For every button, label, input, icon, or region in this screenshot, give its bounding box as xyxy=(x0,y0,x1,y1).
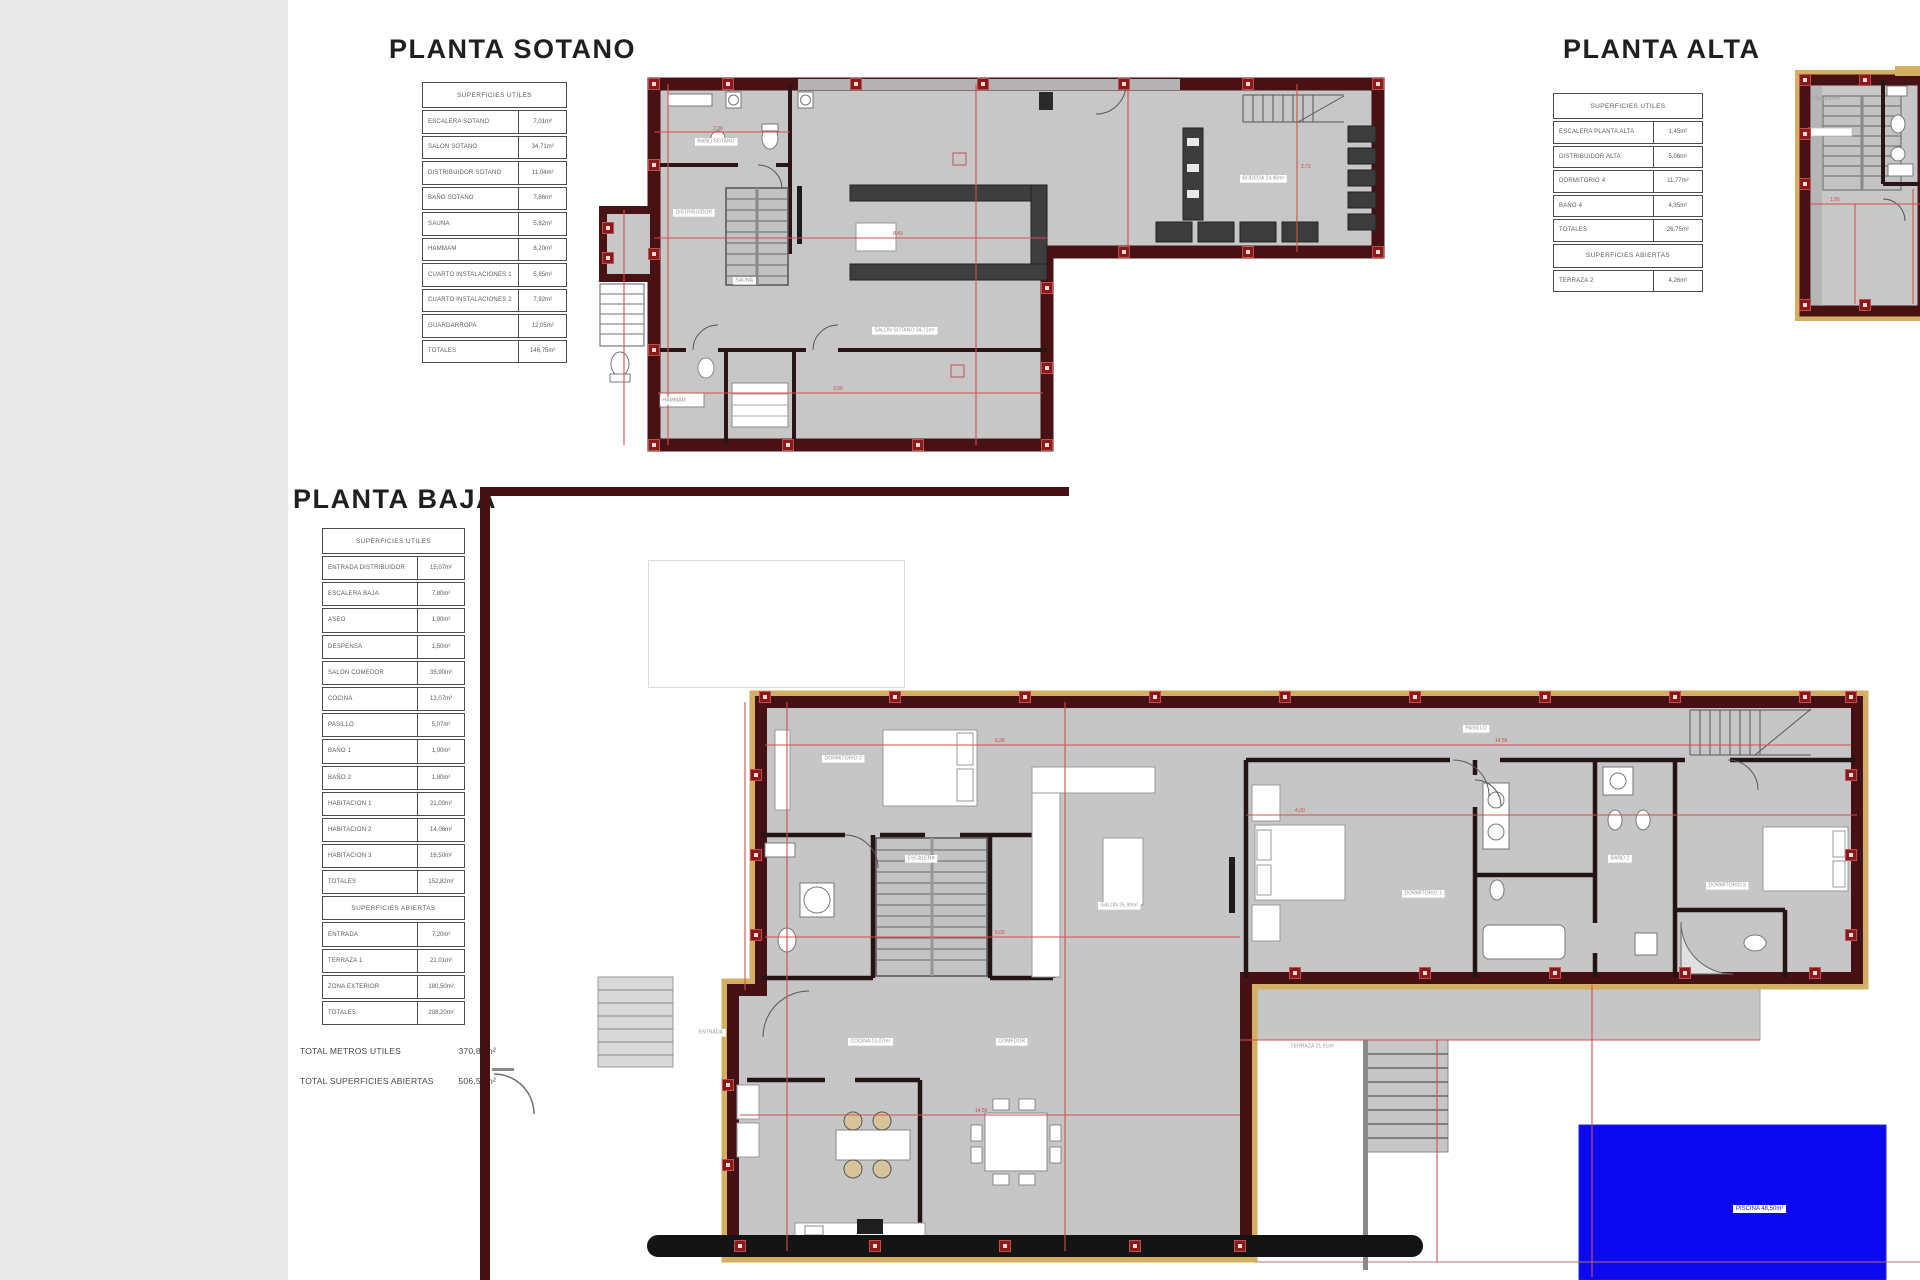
table-row: GUARDARROPA12,05m² xyxy=(422,314,567,338)
table-row: HABITACION 121,00m² xyxy=(322,792,465,816)
table-row: TOTALES26,75m² xyxy=(1553,219,1703,242)
total-metros-utiles: TOTAL METROS UTILES 370,87m² xyxy=(300,1046,496,1056)
table-row: DISTRIBUIDOR ALTA5,06m² xyxy=(1553,146,1703,169)
baja-terrace xyxy=(1240,985,1760,1040)
table-row: BAÑO 21,80m² xyxy=(322,766,465,790)
total-value: 370,87m² xyxy=(458,1046,496,1056)
table-superficies-alta: SUPERFICIES UTILES ESCALERA PLANTA ALTA1… xyxy=(1553,93,1703,292)
total-label: TOTAL SUPERFICIES ABIERTAS xyxy=(300,1076,434,1086)
baja-porch-stairs xyxy=(598,977,673,1067)
sotano-stairs xyxy=(726,188,788,285)
table-header-baja: SUPERFICIES UTILES xyxy=(322,528,465,554)
room-label: BAÑO 2 xyxy=(1608,855,1632,863)
sotano-tv xyxy=(797,186,802,244)
table-row: HABITACION 214,06m² xyxy=(322,818,465,842)
alta-tan-block xyxy=(1895,66,1920,76)
table-row: ESCALERA SOTANO7,01m² xyxy=(422,110,567,134)
room-label: BODEGA 24,90m² xyxy=(1240,175,1287,183)
table-header-sotano: SUPERFICIES UTILES xyxy=(422,82,567,108)
room-label: SALON 35,90m² xyxy=(1098,902,1141,910)
table-row: PASILLO5,07m² xyxy=(322,713,465,737)
svg-text:3,95: 3,95 xyxy=(833,386,843,392)
table-row: DORMITORIO 411,77m² xyxy=(1553,170,1703,193)
table-row: SALON SOTANO34,71m² xyxy=(422,136,567,160)
table-row: CUARTO INSTALACIONES 15,85m² xyxy=(422,263,567,287)
table-row: BAÑO 11,90m² xyxy=(322,739,465,763)
table-superficies-baja: SUPERFICIES UTILES ENTRADA DISTRIBUIDOR1… xyxy=(322,528,465,1025)
table-row: DESPENSA1,50m² xyxy=(322,635,465,659)
table-row: DISTRIBUIDOR SOTANO11,04m² xyxy=(422,161,567,185)
room-label: SALON SOTANO 34,71m² xyxy=(872,327,937,335)
svg-text:2,30: 2,30 xyxy=(713,126,723,132)
floor-plan-sotano: 2,30 8,43 3,95 2,72 xyxy=(598,68,1390,460)
table-rows-alta: ESCALERA PLANTA ALTA1,45m²DISTRIBUIDOR A… xyxy=(1553,121,1703,242)
table-row: BAÑO SOTANO7,86m² xyxy=(422,187,567,211)
table-row: TOTALES208,20m² xyxy=(322,1001,465,1025)
table-row: HAMMAM8,20m² xyxy=(422,238,567,262)
room-label: DORMITORIO 1 xyxy=(1402,890,1444,898)
room-label: ENTRADA xyxy=(696,1029,725,1037)
svg-text:4,00: 4,00 xyxy=(1295,808,1305,814)
svg-text:8,43: 8,43 xyxy=(893,231,903,237)
table-row: TERRAZA 121,01m² xyxy=(322,949,465,973)
table-row: TERRAZA 24,26m² xyxy=(1553,270,1703,293)
table-row: ASEO1,90m² xyxy=(322,608,465,632)
alta-terrace-strip xyxy=(1811,86,1822,305)
table-row: ENTRADA DISTRIBUIDOR15,07m² xyxy=(322,556,465,580)
alta-dimension-text: 1,95 xyxy=(1830,197,1840,203)
floor-plan-baja: 6,26 14,56 5,00 4,00 14,56 xyxy=(595,685,1920,1280)
total-superficies-abiertas: TOTAL SUPERFICIES ABIERTAS 506,56m² xyxy=(300,1076,496,1086)
table-row: ESCALERA BAJA7,80m² xyxy=(322,582,465,606)
room-label: ESCALERA xyxy=(905,855,937,863)
sotano-exterior-stairs xyxy=(600,284,644,346)
title-planta-baja: PLANTA BAJA xyxy=(293,484,497,515)
room-label: ESCALERA xyxy=(1812,96,1839,102)
table-rows-baja: ENTRADA DISTRIBUIDOR15,07m²ESCALERA BAJA… xyxy=(322,556,465,894)
table-row: COCINA13,07m² xyxy=(322,687,465,711)
title-planta-sotano: PLANTA SOTANO xyxy=(389,34,636,65)
room-label: SAUNA xyxy=(733,277,756,285)
table-rows-sotano: ESCALERA SOTANO7,01m²SALON SOTANO34,71m²… xyxy=(422,110,567,363)
table-row: BAÑO 44,35m² xyxy=(1553,195,1703,218)
sotano-entry-porch xyxy=(603,210,654,278)
room-label: HAMMAM xyxy=(660,397,688,405)
drawing-sheet-canvas: PLANTA SOTANO PLANTA ALTA PLANTA BAJA SU… xyxy=(0,0,1920,1280)
table-row: TOTALES152,82m² xyxy=(322,870,465,894)
room-label: TERRAZA 21,01m² xyxy=(1288,1043,1337,1051)
room-label: BAÑO SOTANO xyxy=(695,138,737,146)
boundary-wall-vertical xyxy=(480,487,490,1280)
table-row: SAUNA5,82m² xyxy=(422,212,567,236)
table-section-abiertas-alta: SUPERFICIES ABIERTAS xyxy=(1553,244,1703,268)
table-rows2-alta: TERRAZA 24,26m² xyxy=(1553,270,1703,293)
table-row: TOTALES146,75m² xyxy=(422,340,567,364)
table-row: ESCALERA PLANTA ALTA1,45m² xyxy=(1553,121,1703,144)
baja-toilet3 xyxy=(1744,935,1766,951)
room-label: DORMITORIO 2 xyxy=(822,755,864,763)
overlay-outline xyxy=(648,560,905,688)
svg-text:14,56: 14,56 xyxy=(975,1108,988,1114)
svg-text:6,26: 6,26 xyxy=(995,738,1005,744)
room-label: DISTRIBUIDOR xyxy=(673,209,715,217)
sotano-column xyxy=(1039,92,1053,110)
pool-label: PISCINA 48,50m² xyxy=(1733,1205,1786,1213)
room-label: DORMITORIO 3 xyxy=(1706,882,1748,890)
room-label: COMEDOR xyxy=(996,1038,1028,1046)
baja-tv xyxy=(1229,857,1235,913)
room-label: PASILLO xyxy=(1463,725,1489,733)
boundary-gate-arc xyxy=(490,1070,550,1130)
room-label: COCINA 13,07m² xyxy=(848,1038,893,1046)
boundary-wall-horizontal xyxy=(481,487,1069,496)
sotano-table xyxy=(856,223,896,251)
table-superficies-sotano: SUPERFICIES UTILES ESCALERA SOTANO7,01m²… xyxy=(422,82,567,363)
baja-bed3 xyxy=(1763,827,1848,891)
table-header-alta: SUPERFICIES UTILES xyxy=(1553,93,1703,119)
svg-text:5,00: 5,00 xyxy=(995,930,1005,936)
svg-text:14,56: 14,56 xyxy=(1495,738,1508,744)
baja-glass-wall-bar xyxy=(647,1235,1423,1257)
title-planta-alta: PLANTA ALTA xyxy=(1563,34,1760,65)
floor-plan-alta: 1,95 xyxy=(1795,64,1920,322)
total-label: TOTAL METROS UTILES xyxy=(300,1046,401,1056)
table-row: SALON COMEDOR35,90m² xyxy=(322,661,465,685)
sotano-wc-exterior xyxy=(610,352,630,382)
svg-text:2,72: 2,72 xyxy=(1301,164,1311,170)
table-rows2-baja: ENTRADA7,20m²TERRAZA 121,01m²ZONA EXTERI… xyxy=(322,922,465,1025)
table-section-abiertas-baja: SUPERFICIES ABIERTAS xyxy=(322,896,465,920)
table-row: ZONA EXTERIOR180,50m² xyxy=(322,975,465,999)
table-row: HABITACION 316,50m² xyxy=(322,844,465,868)
baja-pool xyxy=(1579,1125,1886,1280)
baja-exterior-stairs xyxy=(1365,1040,1448,1152)
table-row: ENTRADA7,20m² xyxy=(322,922,465,946)
table-row: CUARTO INSTALACIONES 27,92m² xyxy=(422,289,567,313)
alta-label-box xyxy=(1808,128,1852,136)
